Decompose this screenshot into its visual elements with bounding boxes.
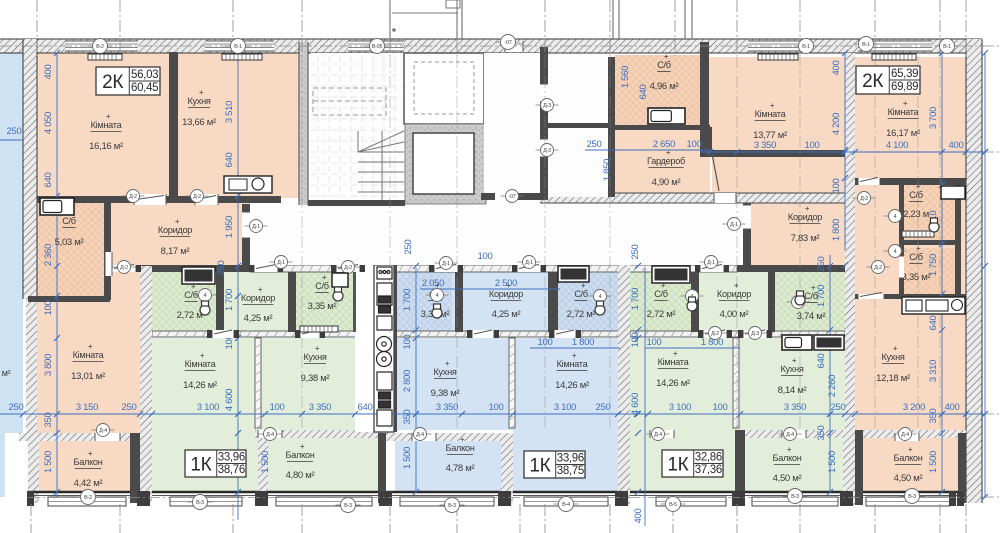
svg-text:Кухня: Кухня (187, 96, 210, 106)
svg-text:В-2: В-2 (84, 495, 92, 501)
svg-text:2 360: 2 360 (43, 244, 54, 266)
svg-text:640: 640 (638, 85, 649, 100)
svg-text:4,78 м²: 4,78 м² (446, 463, 475, 474)
svg-text:400: 400 (43, 65, 54, 80)
svg-text:+: + (175, 217, 180, 226)
svg-text:4 600: 4 600 (630, 393, 641, 415)
svg-text:400: 400 (945, 402, 960, 413)
svg-text:+: + (315, 344, 320, 353)
svg-text:+: + (666, 148, 671, 157)
svg-text:37,36: 37,36 (695, 464, 722, 476)
svg-text:+: + (811, 283, 816, 292)
svg-text:4: 4 (599, 294, 602, 300)
svg-text:3,74 м²: 3,74 м² (797, 311, 826, 322)
svg-text:1 500: 1 500 (827, 451, 838, 473)
svg-text:Коридор: Коридор (717, 289, 751, 299)
svg-text:Кухня: Кухня (780, 364, 803, 374)
svg-text:Коридор: Коридор (241, 293, 275, 303)
svg-text:640: 640 (358, 402, 373, 413)
svg-text:+: + (258, 285, 263, 294)
svg-text:С/б: С/б (62, 216, 76, 226)
svg-text:+: + (805, 204, 810, 213)
svg-text:С/б: С/б (574, 289, 588, 299)
svg-text:640: 640 (928, 316, 939, 331)
svg-text:100: 100 (831, 179, 842, 194)
svg-text:Кімната: Кімната (185, 359, 217, 369)
svg-text:+: + (916, 244, 921, 253)
svg-text:100: 100 (647, 337, 662, 348)
svg-text:4: 4 (894, 214, 897, 220)
svg-text:Кімната: Кімната (557, 359, 589, 369)
svg-text:4,50 м²: 4,50 м² (773, 473, 802, 484)
svg-text:100: 100 (805, 140, 820, 151)
svg-text:+: + (903, 99, 908, 108)
svg-text:+: + (88, 342, 93, 351)
svg-text:4 050: 4 050 (43, 112, 54, 134)
svg-text:+: + (916, 182, 921, 191)
svg-text:+: + (673, 349, 678, 358)
svg-text:1 850: 1 850 (602, 159, 613, 181)
svg-text:В-3: В-3 (448, 503, 456, 509)
svg-text:+: + (787, 445, 792, 454)
svg-text:С/б: С/б (654, 289, 668, 299)
svg-text:В-05: В-05 (372, 44, 383, 50)
svg-text:250: 250 (9, 402, 24, 413)
svg-text:+: + (200, 351, 205, 360)
svg-text:1К: 1К (667, 455, 688, 476)
svg-text:Балкон: Балкон (73, 457, 102, 467)
svg-text:250: 250 (7, 126, 22, 137)
svg-text:4 600: 4 600 (224, 389, 235, 411)
svg-text:+: + (770, 101, 775, 110)
svg-text:Кухня: Кухня (881, 352, 904, 362)
svg-text:2К: 2К (102, 72, 123, 93)
svg-text:+: + (88, 449, 93, 458)
svg-text:1 500: 1 500 (928, 451, 939, 473)
svg-text:3 510: 3 510 (224, 101, 235, 123)
svg-text:Кухня: Кухня (433, 367, 456, 377)
svg-text:Гардероб: Гардероб (647, 156, 685, 166)
svg-text:Д-4: Д-4 (266, 432, 274, 438)
svg-text:+: + (322, 273, 327, 282)
svg-text:Д-2: Д-2 (874, 265, 882, 271)
svg-text:-07: -07 (508, 194, 515, 200)
svg-text:250: 250 (587, 139, 602, 150)
svg-text:4,25 м²: 4,25 м² (244, 313, 273, 324)
svg-text:250: 250 (596, 402, 611, 413)
svg-text:2 260: 2 260 (827, 375, 838, 397)
svg-text:38,75: 38,75 (557, 465, 584, 477)
svg-text:С/б: С/б (315, 281, 329, 291)
svg-text:8,14 м²: 8,14 м² (778, 385, 807, 396)
svg-text:В-3: В-3 (344, 503, 352, 509)
svg-text:В-3: В-3 (908, 494, 916, 500)
svg-text:3 350: 3 350 (309, 402, 331, 413)
svg-text:1 500: 1 500 (260, 451, 271, 473)
svg-text:Балкон: Балкон (893, 453, 922, 463)
svg-text:33,96: 33,96 (218, 452, 245, 464)
svg-text:350: 350 (43, 413, 54, 428)
svg-text:7,83 м²: 7,83 м² (791, 233, 820, 244)
svg-text:4 100: 4 100 (886, 140, 908, 151)
svg-text:250: 250 (216, 261, 227, 276)
svg-text:3 350: 3 350 (784, 402, 806, 413)
svg-text:+: + (664, 52, 669, 61)
svg-text:С/б: С/б (804, 291, 818, 301)
svg-text:В-1: В-1 (802, 44, 810, 50)
svg-text:2К: 2К (862, 71, 883, 92)
svg-text:+: + (199, 88, 204, 97)
svg-text:4,80 м²: 4,80 м² (286, 470, 315, 481)
svg-text:+: + (460, 435, 465, 444)
svg-text:1 800: 1 800 (831, 219, 842, 241)
svg-text:Д-2: Д-2 (344, 265, 352, 271)
svg-text:4,00 м²: 4,00 м² (720, 309, 749, 320)
svg-text:1 560: 1 560 (620, 66, 631, 88)
svg-text:1 700: 1 700 (402, 289, 413, 311)
svg-text:Д-2: Д-2 (193, 194, 201, 200)
svg-text:3,35 м²: 3,35 м² (902, 272, 931, 283)
svg-text:Д-3: Д-3 (751, 331, 759, 337)
svg-text:2 650: 2 650 (653, 139, 675, 150)
svg-text:4 200: 4 200 (831, 113, 842, 135)
svg-text:В-2: В-2 (96, 44, 104, 50)
svg-text:Д-4: Д-4 (416, 432, 424, 438)
svg-text:14,26 м²: 14,26 м² (555, 380, 589, 391)
svg-text:33,96: 33,96 (557, 453, 584, 465)
svg-text:1К: 1К (529, 456, 550, 477)
svg-text:+: + (893, 344, 898, 353)
svg-text:+: + (734, 281, 739, 290)
svg-text:+: + (445, 359, 450, 368)
svg-text:Коридор: Коридор (489, 289, 523, 299)
svg-text:4,96 м²: 4,96 м² (650, 81, 679, 92)
svg-text:Д-3: Д-3 (543, 103, 551, 109)
svg-text:3 150: 3 150 (76, 402, 98, 413)
svg-text:2 050: 2 050 (422, 278, 444, 289)
svg-text:250: 250 (816, 257, 827, 272)
svg-text:250: 250 (630, 245, 641, 260)
svg-text:-07: -07 (504, 40, 511, 46)
svg-text:3 350: 3 350 (436, 402, 458, 413)
svg-text:В-3: В-3 (791, 494, 799, 500)
svg-text:4,50 м²: 4,50 м² (894, 473, 923, 484)
svg-text:250: 250 (831, 402, 846, 413)
svg-text:2,72 м²: 2,72 м² (647, 309, 676, 320)
svg-text:38,76: 38,76 (218, 464, 245, 476)
svg-text:3,35 м²: 3,35 м² (308, 301, 337, 312)
svg-text:100: 100 (538, 337, 553, 348)
svg-text:32,86: 32,86 (695, 452, 722, 464)
svg-text:+: + (572, 351, 577, 360)
svg-text:1 950: 1 950 (224, 216, 235, 238)
svg-text:С/б: С/б (909, 190, 923, 200)
svg-text:4: 4 (894, 249, 897, 255)
svg-text:В-5: В-5 (669, 502, 677, 508)
svg-text:Кімната: Кімната (755, 109, 787, 119)
svg-text:350: 350 (928, 409, 939, 424)
svg-text:4,90 м²: 4,90 м² (652, 177, 681, 188)
svg-text:3 800: 3 800 (43, 354, 54, 376)
svg-text:3 100: 3 100 (197, 402, 219, 413)
svg-text:Д-1: Д-1 (525, 260, 533, 266)
svg-text:Кімната: Кімната (73, 350, 105, 360)
svg-text:350: 350 (402, 410, 413, 425)
svg-text:400: 400 (949, 140, 964, 151)
svg-text:12,18 м²: 12,18 м² (876, 373, 910, 384)
svg-text:В-3: В-3 (196, 500, 204, 506)
svg-text:Балкон: Балкон (445, 443, 474, 453)
svg-text:Д-1: Д-1 (707, 260, 715, 266)
svg-text:65,39: 65,39 (891, 68, 918, 80)
svg-text:100: 100 (478, 251, 493, 262)
svg-text:100: 100 (713, 402, 728, 413)
svg-text:100: 100 (630, 333, 641, 348)
svg-text:13,01 м²: 13,01 м² (71, 371, 105, 382)
svg-text:640: 640 (224, 153, 235, 168)
svg-text:+: + (106, 112, 111, 121)
svg-text:+: + (792, 356, 797, 365)
svg-text:Кімната: Кімната (888, 107, 920, 117)
svg-text:Д-4: Д-4 (901, 432, 909, 438)
svg-text:4,42 м²: 4,42 м² (74, 478, 103, 489)
svg-text:13,77 м²: 13,77 м² (753, 130, 787, 141)
svg-text:С/б: С/б (657, 60, 671, 70)
svg-text:640: 640 (43, 173, 54, 188)
svg-text:В-1: В-1 (943, 44, 951, 50)
svg-text:250: 250 (122, 402, 137, 413)
svg-text:Балкон: Балкон (285, 450, 314, 460)
svg-text:+: + (506, 281, 511, 290)
svg-text:Д-3: Д-3 (543, 148, 551, 154)
svg-text:Коридор: Коридор (788, 212, 822, 222)
svg-text:60,45: 60,45 (131, 82, 158, 94)
svg-text:14,26 м²: 14,26 м² (656, 378, 690, 389)
svg-text:1 700: 1 700 (630, 288, 641, 310)
svg-text:100: 100 (43, 301, 54, 316)
svg-text:С/б: С/б (909, 252, 923, 262)
svg-text:4,25 м²: 4,25 м² (492, 309, 521, 320)
svg-text:Д-1: Д-1 (442, 261, 450, 267)
svg-text:250: 250 (403, 240, 414, 255)
svg-text:Кімната: Кімната (658, 357, 690, 367)
svg-text:1 500: 1 500 (402, 447, 413, 469)
svg-text:м²: м² (2, 368, 11, 378)
svg-text:Д-2: Д-2 (711, 331, 719, 337)
svg-text:В-4: В-4 (562, 502, 570, 508)
svg-text:4: 4 (204, 293, 207, 299)
svg-text:400: 400 (633, 509, 644, 524)
svg-text:9,38 м²: 9,38 м² (301, 373, 330, 384)
svg-text:2,23 м: 2,23 м (903, 209, 929, 220)
svg-text:13,66 м²: 13,66 м² (182, 117, 216, 128)
svg-text:2,72 м²: 2,72 м² (567, 309, 596, 320)
svg-text:Балкон: Балкон (772, 453, 801, 463)
svg-text:2 800: 2 800 (402, 370, 413, 392)
svg-text:1 700: 1 700 (224, 289, 235, 311)
svg-text:1К: 1К (190, 455, 211, 476)
svg-text:400: 400 (831, 61, 842, 76)
svg-text:8,17 м²: 8,17 м² (161, 246, 190, 257)
svg-text:Кухня: Кухня (303, 352, 326, 362)
svg-text:640: 640 (816, 354, 827, 369)
svg-text:100: 100 (489, 402, 504, 413)
svg-text:69,89: 69,89 (891, 81, 918, 93)
svg-text:9,38 м²: 9,38 м² (431, 388, 460, 399)
svg-text:3 200: 3 200 (903, 402, 925, 413)
svg-text:14,26 м²: 14,26 м² (183, 380, 217, 391)
svg-text:5,03 м²: 5,03 м² (55, 237, 84, 248)
svg-text:Д-2: Д-2 (860, 196, 868, 202)
svg-text:1 500: 1 500 (43, 451, 54, 473)
svg-text:56,03: 56,03 (131, 69, 158, 81)
svg-text:3 310: 3 310 (928, 360, 939, 382)
svg-text:+: + (300, 442, 305, 451)
svg-text:16,17 м²: 16,17 м² (886, 128, 920, 139)
svg-text:1 800: 1 800 (572, 337, 594, 348)
svg-text:3 350: 3 350 (754, 140, 776, 151)
svg-text:4: 4 (436, 293, 439, 299)
svg-text:Кімната: Кімната (91, 120, 123, 130)
svg-text:100: 100 (402, 335, 413, 350)
svg-text:16,16 м²: 16,16 м² (89, 141, 123, 152)
svg-text:+: + (908, 445, 913, 454)
svg-text:3 700: 3 700 (928, 107, 939, 129)
svg-text:Д-2: Д-2 (120, 265, 128, 271)
svg-text:3 100: 3 100 (669, 402, 691, 413)
svg-text:100: 100 (687, 139, 702, 150)
svg-text:Д-1: Д-1 (277, 260, 285, 266)
svg-text:Д-4: Д-4 (654, 432, 662, 438)
svg-text:Д-1: Д-1 (730, 222, 738, 228)
svg-text:3 100: 3 100 (554, 402, 576, 413)
svg-text:100: 100 (270, 402, 285, 413)
svg-text:Д-4: Д-4 (99, 428, 107, 434)
svg-text:350: 350 (816, 426, 827, 441)
svg-text:Д-4: Д-4 (786, 432, 794, 438)
svg-text:Д-2: Д-2 (129, 194, 137, 200)
svg-text:В-1: В-1 (862, 42, 870, 48)
svg-text:Коридор: Коридор (158, 225, 192, 235)
svg-text:В-1: В-1 (234, 44, 242, 50)
svg-text:Д-1: Д-1 (252, 224, 260, 230)
